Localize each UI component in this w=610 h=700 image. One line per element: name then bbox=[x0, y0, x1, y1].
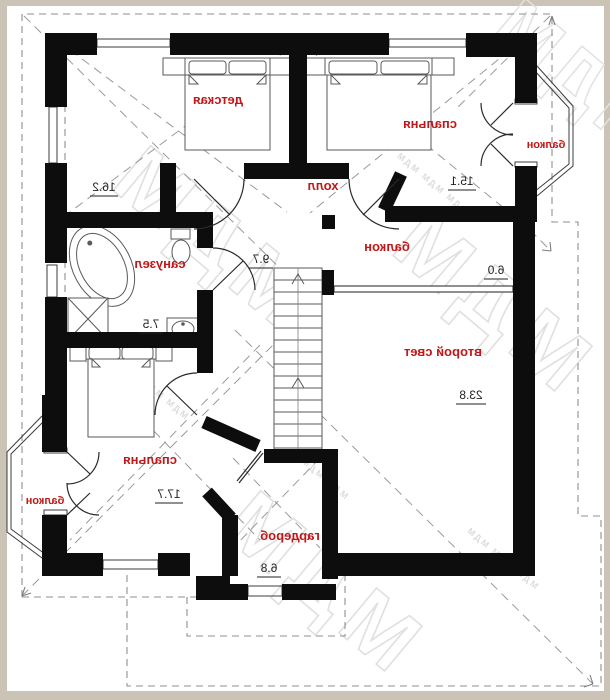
area-value-holl: 9.7 bbox=[252, 252, 269, 266]
room-label-holl: холл bbox=[307, 178, 338, 193]
room-label-vtoroy-svet: второй свет bbox=[404, 344, 482, 359]
room-label-detskaya: детская bbox=[193, 92, 243, 107]
floor-plan-svg: МДМ МДМ МДМ МДМ МДМ МДМ МДМ МДМ МДМ МДМ … bbox=[0, 0, 610, 700]
area-value-garderob: 6.8 bbox=[260, 561, 277, 575]
stairs-symbol bbox=[274, 268, 322, 456]
room-label-balkon-inner: балкон bbox=[364, 239, 410, 254]
balcony-railing bbox=[334, 286, 513, 292]
room-label-spalnya-top: спальня bbox=[403, 116, 457, 131]
room-label-balkon-right: балкон bbox=[527, 139, 566, 151]
area-value-detskaya: 16.2 bbox=[92, 180, 116, 194]
area-value-spalnya-top: 15.1 bbox=[450, 174, 474, 188]
room-label-sanuzel: санузел bbox=[134, 256, 185, 271]
area-value-vtoroy-svet: 23.8 bbox=[459, 388, 483, 402]
room-label-garderob: гардероб bbox=[260, 528, 320, 543]
room-label-spalnya-bottom: спальня bbox=[123, 452, 177, 467]
area-value-sanuzel: 7.5 bbox=[142, 317, 159, 331]
room-label-balkon-left: балкон bbox=[26, 495, 65, 507]
area-value-balkon-inner: 6.0 bbox=[487, 263, 504, 277]
floor-plan-page: МДМ МДМ МДМ МДМ МДМ МДМ МДМ МДМ МДМ МДМ … bbox=[0, 0, 610, 700]
area-value-spalnya-bottom: 17.7 bbox=[157, 487, 181, 501]
